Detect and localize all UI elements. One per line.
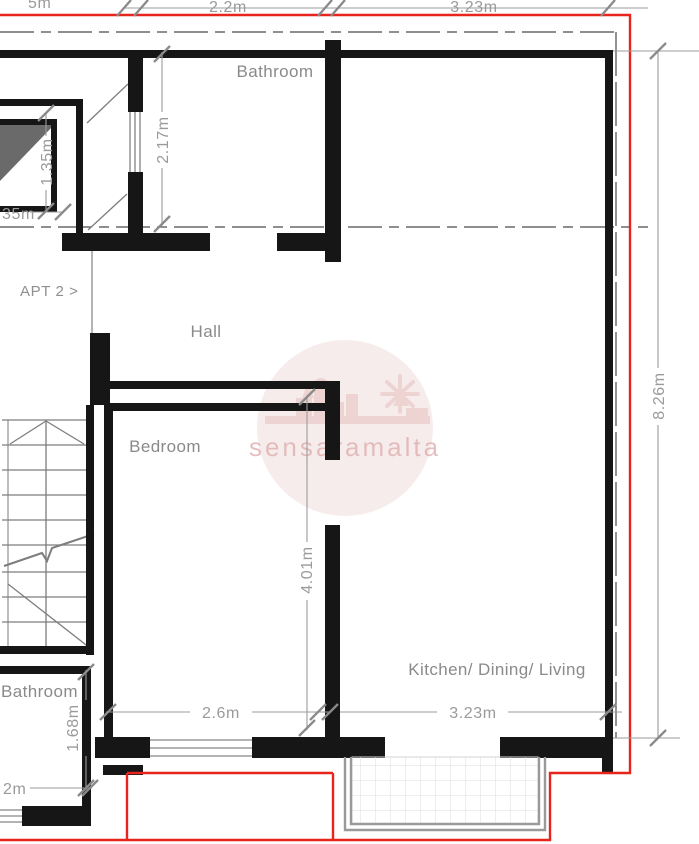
dim-shaft-width-partial: 35m [2,206,35,223]
label-bedroom: Bedroom [129,437,201,456]
terrace-tiles [352,757,538,824]
dim-shaft-height: 1.35m [39,138,56,185]
bathroom2-window [0,810,22,822]
terrace [345,757,545,830]
corridor-door-swing [88,194,127,230]
dim-bathroom-height: 2.17m [155,116,172,163]
entrance-door-swing [87,84,128,123]
door-swings [87,84,128,230]
dim-top-left-partial: 5m [28,0,51,12]
dim-right-height: 8.26m [651,372,668,419]
watermark-circle [257,340,433,516]
dim-bedroom-height: 4.01m [299,546,316,593]
label-bathroom-top: Bathroom [237,62,314,81]
dim-bathroom2-width-partial: 2m [3,781,26,798]
dim-top-width-1: 2.2m [209,0,247,16]
bedroom-window [150,740,252,756]
floor-plan: sensaramalta [0,0,699,844]
stairs [2,420,94,648]
bathroom-window [130,112,140,172]
floor-plan-svg: sensaramalta [0,0,699,844]
label-apt2: APT 2 > [20,283,79,300]
dim-bedroom-width: 2.6m [202,705,240,722]
label-hall: Hall [191,322,222,341]
dim-kitchen-width: 3.23m [449,705,496,722]
dim-top-width-2: 3.23m [450,0,497,16]
dim-bathroom2-height: 1.68m [65,704,82,751]
watermark: sensaramalta [249,340,441,516]
label-kitchen: Kitchen/ Dining/ Living [408,660,585,679]
watermark-text: sensaramalta [249,432,441,462]
label-bathroom-bottom: Bathroom [1,682,78,701]
